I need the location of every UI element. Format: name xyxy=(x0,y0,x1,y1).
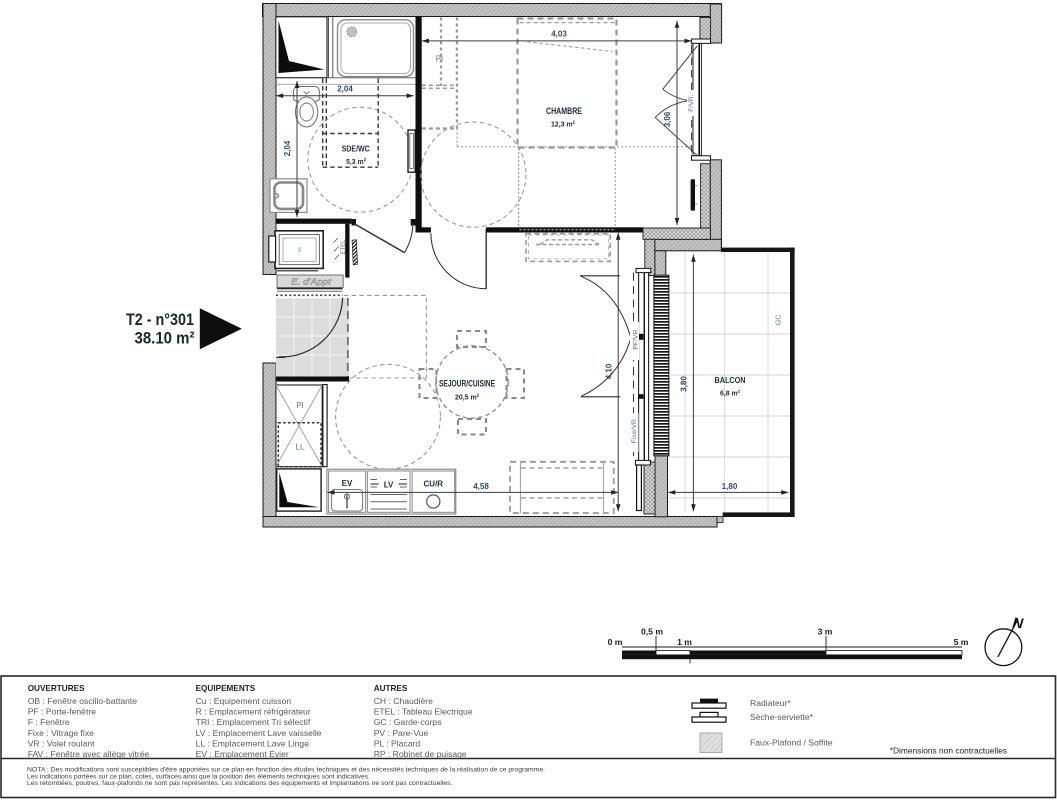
svg-text:OUVERTURES: OUVERTURES xyxy=(28,684,85,693)
svg-text:2,04: 2,04 xyxy=(283,140,292,156)
svg-text:R : Emplacement réfrigérateur: R : Emplacement réfrigérateur xyxy=(196,707,311,717)
svg-text:GC : Garde-corps: GC : Garde-corps xyxy=(374,717,442,727)
svg-text:Fixe : Vitrage fixe: Fixe : Vitrage fixe xyxy=(28,728,94,738)
svg-text:T2 - n°301: T2 - n°301 xyxy=(126,311,194,329)
svg-text:CH : Chaudière: CH : Chaudière xyxy=(374,696,433,706)
svg-text:Cu : Equipement cuisson: Cu : Equipement cuisson xyxy=(196,696,292,706)
svg-text:*Dimensions non contractuelles: *Dimensions non contractuelles xyxy=(890,746,1007,756)
svg-text:PI: PI xyxy=(436,55,444,64)
svg-text:AUTRES: AUTRES xyxy=(374,684,408,693)
svg-text:CHAMBRE: CHAMBRE xyxy=(546,106,582,116)
svg-text:ETEL: ETEL xyxy=(341,239,347,255)
svg-text:5 m: 5 m xyxy=(954,637,969,647)
svg-text:FAV : Fenêtre avec allège vitr: FAV : Fenêtre avec allège vitrée xyxy=(28,749,150,759)
svg-text:VR : Volet roulant: VR : Volet roulant xyxy=(28,738,95,748)
svg-text:6,8 m²: 6,8 m² xyxy=(720,388,740,397)
svg-text:4,58: 4,58 xyxy=(473,482,489,491)
svg-text:F : Fenêtre: F : Fenêtre xyxy=(28,717,70,727)
svg-text:Les retombées, poutres, faux-p: Les retombées, poutres, faux-plafonds ne… xyxy=(27,780,453,787)
svg-text:SEJOUR/CUISINE: SEJOUR/CUISINE xyxy=(439,379,495,389)
svg-text:20,5 m²: 20,5 m² xyxy=(455,393,479,402)
svg-text:2,04: 2,04 xyxy=(337,84,353,93)
svg-text:5,3 m²: 5,3 m² xyxy=(346,157,366,166)
svg-text:ETEL : Tableau Electrique: ETEL : Tableau Electrique xyxy=(374,707,473,717)
svg-text:Faux-Plafond / Soffite: Faux-Plafond / Soffite xyxy=(750,738,833,748)
svg-text:0,5 m: 0,5 m xyxy=(641,627,663,637)
svg-text:TRI : Emplacement Tri sélectif: TRI : Emplacement Tri sélectif xyxy=(196,717,311,727)
svg-text:BALCON: BALCON xyxy=(715,375,746,385)
svg-text:LL: LL xyxy=(296,443,305,452)
svg-text:PL : Placard: PL : Placard xyxy=(374,738,421,748)
svg-text:PF : Porte-fenêtre: PF : Porte-fenêtre xyxy=(28,707,97,717)
svg-text:CU/R: CU/R xyxy=(424,480,444,489)
svg-text:PF/VR.: PF/VR. xyxy=(633,328,640,350)
svg-text:38.10 m²: 38.10 m² xyxy=(135,330,195,348)
svg-text:EV: EV xyxy=(342,479,353,488)
svg-text:0 m: 0 m xyxy=(608,637,623,647)
svg-text:LV : Emplacement Lave vaissell: LV : Emplacement Lave vaisselle xyxy=(196,728,322,738)
svg-text:3 m: 3 m xyxy=(818,627,833,637)
svg-text:OB : Fenêtre oscillo-battante: OB : Fenêtre oscillo-battante xyxy=(28,696,138,706)
svg-text:LL : Emplacement Lave Linge: LL : Emplacement Lave Linge xyxy=(196,738,310,748)
svg-text:PI: PI xyxy=(296,401,304,410)
svg-text:RP : Robinet de puisage: RP : Robinet de puisage xyxy=(374,749,467,759)
svg-text:1 m: 1 m xyxy=(677,637,692,647)
svg-text:1,80: 1,80 xyxy=(722,482,738,491)
svg-text:Fixe/VR.: Fixe/VR. xyxy=(631,417,638,443)
svg-text:E. d'Appt: E. d'Appt xyxy=(291,277,332,286)
svg-text:3,80: 3,80 xyxy=(680,376,689,392)
svg-text:EQUIPEMENTS: EQUIPEMENTS xyxy=(196,684,256,693)
svg-text:vs: vs xyxy=(298,247,303,252)
svg-text:GC: GC xyxy=(774,315,783,326)
svg-text:12,3 m²: 12,3 m² xyxy=(551,119,575,128)
svg-text:Radiateur*: Radiateur* xyxy=(750,698,791,708)
svg-text:PV : Pare-Vue: PV : Pare-Vue xyxy=(374,728,429,738)
svg-text:F/VR.: F/VR. xyxy=(688,94,695,111)
svg-text:Sèche-serviette*: Sèche-serviette* xyxy=(750,712,814,722)
svg-text:3,06: 3,06 xyxy=(663,111,672,127)
svg-text:EV : Emplacement Evier: EV : Emplacement Evier xyxy=(196,749,289,759)
svg-text:LV: LV xyxy=(384,481,394,490)
svg-text:4,03: 4,03 xyxy=(551,30,567,39)
svg-text:SDE/WC: SDE/WC xyxy=(342,144,370,154)
